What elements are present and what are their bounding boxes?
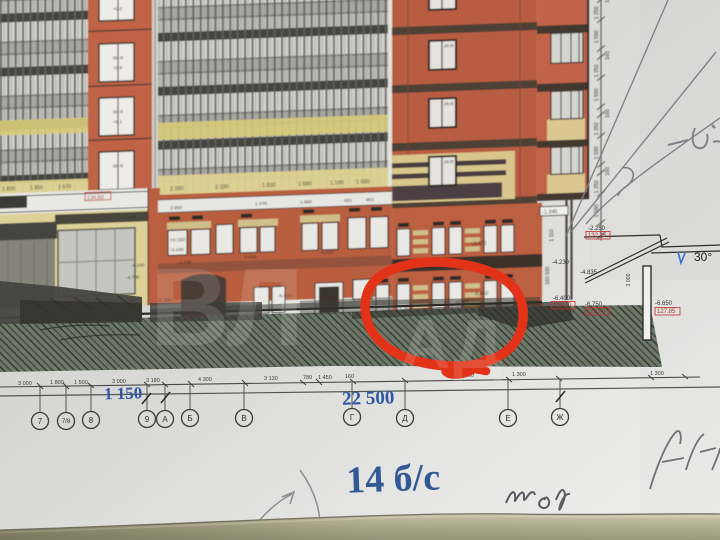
svg-text:1 150: 1 150 bbox=[104, 383, 143, 403]
svg-text:132,25: 132,25 bbox=[588, 233, 607, 239]
svg-text:ВК-8: ВК-8 bbox=[113, 109, 123, 114]
svg-text:А: А bbox=[162, 415, 168, 424]
svg-text:-4.833: -4.833 bbox=[320, 249, 334, 256]
svg-text:1 250: 1 250 bbox=[594, 122, 600, 135]
svg-text:1 850: 1 850 bbox=[30, 185, 43, 191]
svg-text:129,10: 129,10 bbox=[553, 303, 572, 309]
svg-text:-6.650: -6.650 bbox=[655, 301, 673, 307]
svg-text:-4.835: -4.835 bbox=[580, 270, 598, 276]
svg-text:-4.200: -4.200 bbox=[131, 262, 145, 269]
svg-text:651: 651 bbox=[344, 198, 352, 204]
svg-text:Ж: Ж bbox=[556, 413, 564, 422]
svg-text:160: 160 bbox=[605, 51, 611, 60]
svg-text:2 330: 2 330 bbox=[215, 184, 229, 191]
svg-text:-4.700: -4.700 bbox=[126, 275, 140, 282]
svg-text:1 680: 1 680 bbox=[356, 179, 370, 186]
svg-text:2 090: 2 090 bbox=[170, 186, 184, 193]
svg-text:Д: Д bbox=[402, 414, 408, 423]
svg-text:1 590: 1 590 bbox=[594, 88, 600, 101]
svg-text:1 830: 1 830 bbox=[262, 183, 276, 190]
svg-text:+1.545: +1.545 bbox=[120, 215, 135, 222]
svg-text:127,85: 127,85 bbox=[657, 309, 676, 315]
svg-text:2К-В: 2К-В bbox=[444, 101, 453, 106]
svg-text:Г: Г bbox=[350, 413, 355, 422]
svg-text:В: В bbox=[241, 414, 246, 423]
svg-text:Е: Е bbox=[505, 414, 510, 423]
svg-text:1 250: 1 250 bbox=[594, 180, 600, 193]
svg-text:1 880: 1 880 bbox=[300, 199, 312, 205]
svg-text:1 590: 1 590 bbox=[594, 30, 600, 43]
svg-text:3 000: 3 000 bbox=[18, 381, 32, 387]
svg-text:1 250: 1 250 bbox=[594, 64, 600, 77]
svg-text:-1.345: -1.345 bbox=[542, 209, 558, 216]
svg-text:1 300: 1 300 bbox=[512, 372, 526, 378]
svg-text:8: 8 bbox=[89, 416, 94, 425]
svg-text:3 180: 3 180 bbox=[146, 378, 160, 384]
svg-text:-3.470: -3.470 bbox=[472, 241, 486, 248]
svg-text:1 570: 1 570 bbox=[58, 184, 71, 190]
svg-text:14 б/с: 14 б/с bbox=[345, 456, 440, 501]
svg-text:7: 7 bbox=[38, 417, 43, 426]
svg-text:+5.1: +5.1 bbox=[113, 119, 123, 124]
svg-text:3 000: 3 000 bbox=[626, 273, 632, 286]
svg-text:АД: АД bbox=[400, 305, 503, 383]
svg-text:1 180: 1 180 bbox=[330, 180, 344, 187]
svg-text:+0.150: +0.150 bbox=[170, 237, 185, 244]
svg-text:30°: 30° bbox=[694, 250, 712, 264]
svg-text:951: 951 bbox=[366, 197, 374, 203]
svg-text:22 500: 22 500 bbox=[342, 387, 395, 409]
svg-text:+9.0: +9.0 bbox=[113, 6, 123, 11]
svg-text:160: 160 bbox=[605, 0, 611, 3]
svg-text:1 110: 1 110 bbox=[549, 229, 555, 242]
svg-text:1 250: 1 250 bbox=[594, 6, 600, 19]
svg-text:ВЛ: ВЛ bbox=[150, 246, 304, 369]
svg-text:3 130: 3 130 bbox=[264, 376, 278, 382]
svg-text:1 800: 1 800 bbox=[2, 186, 15, 192]
svg-text:1 300: 1 300 bbox=[650, 371, 664, 377]
svg-text:3 950: 3 950 bbox=[170, 205, 182, 211]
svg-text:1 500: 1 500 bbox=[74, 380, 88, 386]
svg-text:1 590: 1 590 bbox=[594, 146, 600, 159]
svg-text:780: 780 bbox=[303, 375, 312, 381]
svg-text:2К-В: 2К-В bbox=[444, 159, 453, 164]
svg-text:-4.230: -4.230 bbox=[552, 260, 570, 266]
svg-text:1 680: 1 680 bbox=[298, 181, 312, 188]
svg-text:1 450: 1 450 bbox=[318, 375, 332, 381]
svg-text:4 300: 4 300 bbox=[198, 377, 212, 383]
svg-text:1 800: 1 800 bbox=[50, 380, 64, 386]
svg-text:ВК-8: ВК-8 bbox=[113, 163, 123, 168]
svg-text:2К-В: 2К-В bbox=[444, 43, 453, 48]
svg-text:160: 160 bbox=[605, 167, 611, 176]
svg-text:Б: Б bbox=[187, 414, 192, 423]
svg-text:ВК-8: ВК-8 bbox=[113, 55, 123, 60]
svg-text:160 930: 160 930 bbox=[545, 266, 551, 285]
svg-text:160: 160 bbox=[345, 374, 354, 380]
svg-text:-6.440: -6.440 bbox=[474, 291, 488, 298]
svg-text:7/8: 7/8 bbox=[62, 419, 71, 425]
svg-text:129,75: 129,75 bbox=[587, 309, 606, 315]
svg-text:160: 160 bbox=[605, 109, 611, 118]
svg-text:9: 9 bbox=[145, 415, 150, 424]
svg-text:1 470: 1 470 bbox=[255, 201, 267, 207]
svg-text:+6.8: +6.8 bbox=[113, 65, 123, 70]
